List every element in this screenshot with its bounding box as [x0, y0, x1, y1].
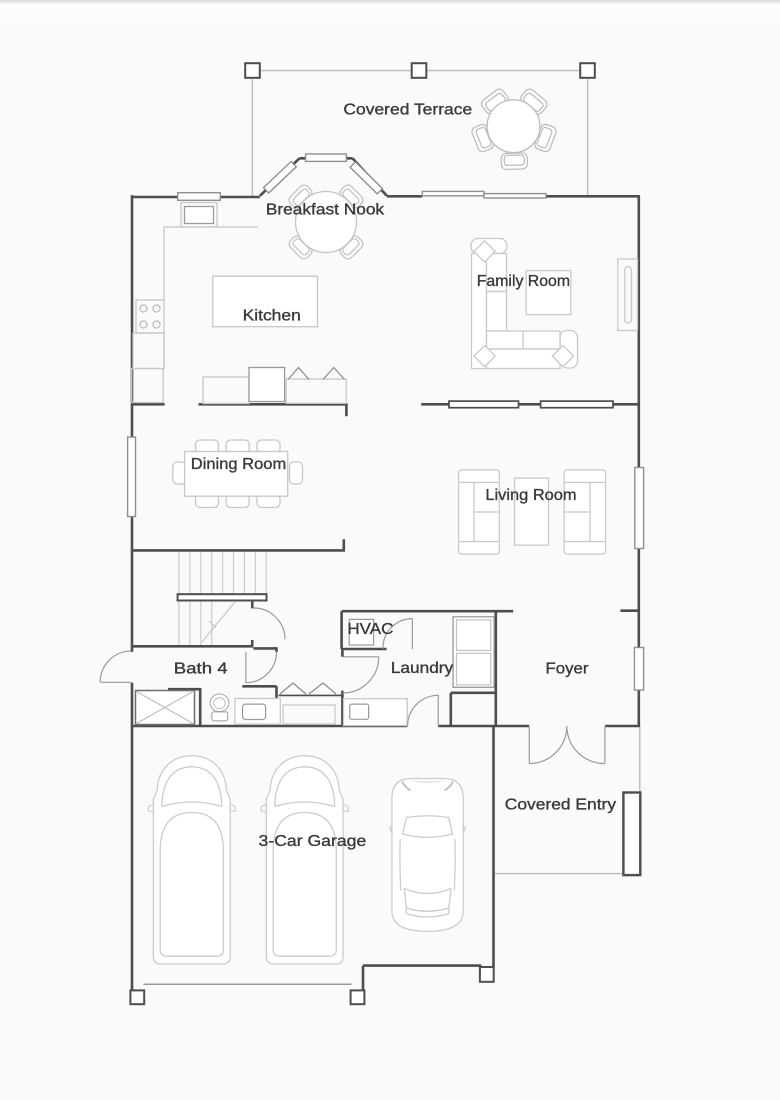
svg-text:Covered Terrace: Covered Terrace [343, 102, 472, 119]
svg-text:Living Room: Living Room [485, 487, 576, 504]
svg-text:Foyer: Foyer [546, 661, 590, 678]
svg-text:Breakfast Nook: Breakfast Nook [266, 201, 385, 218]
svg-text:Kitchen: Kitchen [243, 307, 301, 324]
svg-text:Laundry: Laundry [391, 660, 453, 677]
svg-text:Covered Entry: Covered Entry [505, 797, 616, 814]
svg-text:Dining Room: Dining Room [191, 456, 286, 473]
svg-text:3-Car Garage: 3-Car Garage [259, 833, 367, 850]
svg-text:Family Room: Family Room [477, 273, 570, 290]
svg-text:Bath 4: Bath 4 [174, 661, 228, 678]
svg-text:HVAC: HVAC [347, 621, 393, 638]
